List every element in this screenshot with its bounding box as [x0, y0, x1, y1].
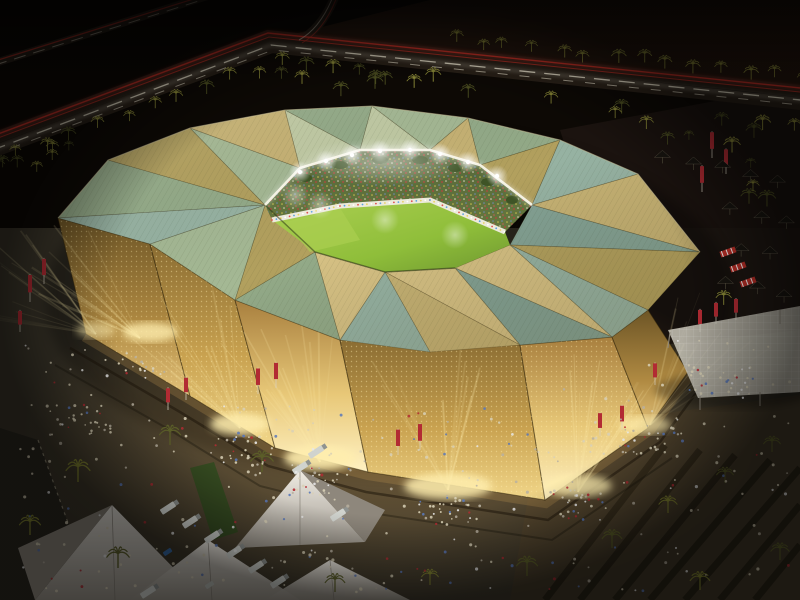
stadium-aerial-rendering: Night aerial architectural rendering of … [0, 0, 800, 600]
vignette [0, 0, 800, 600]
screenshot-root: Night aerial architectural rendering of … [0, 0, 800, 600]
top-darkening [0, 0, 800, 85]
